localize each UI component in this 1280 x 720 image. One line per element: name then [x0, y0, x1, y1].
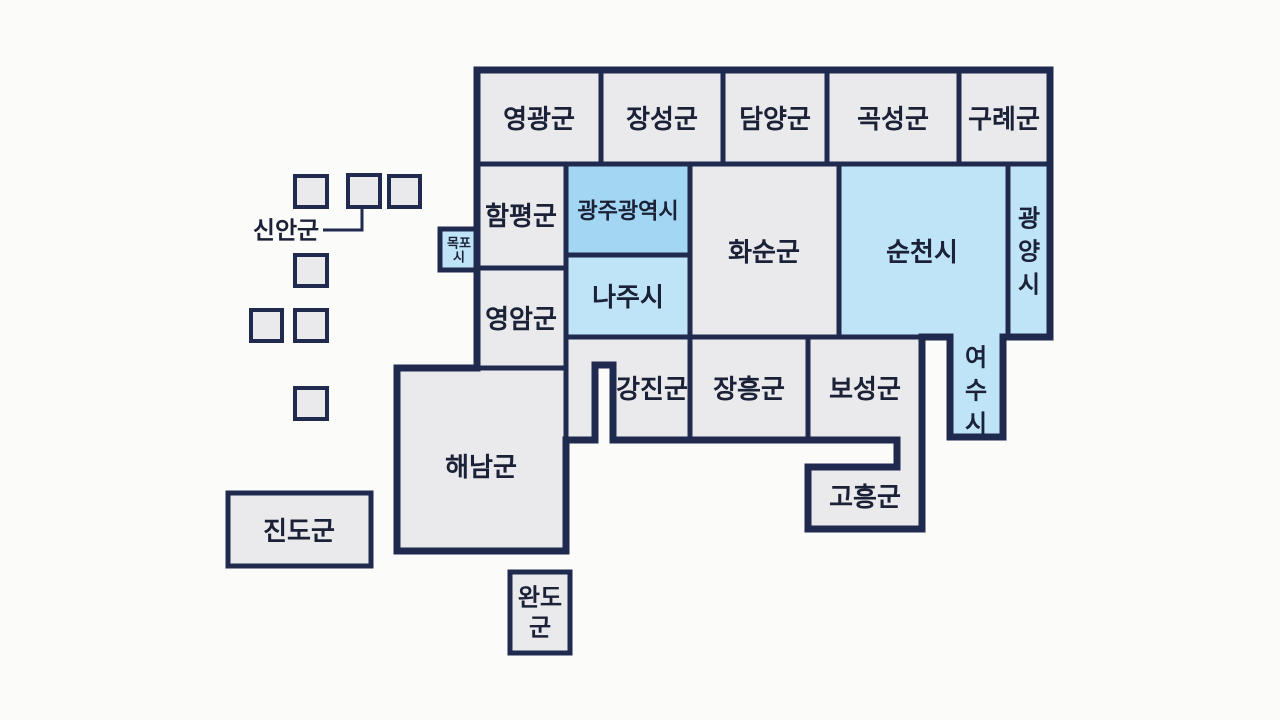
sinan-leader-line: [323, 208, 362, 230]
region-label-gangjin: 강진군: [616, 374, 688, 404]
region-label-boseong: 보성군: [829, 374, 901, 404]
tile-map-container: 영광군장성군담양군곡성군구례군함평군영암군광주광역시나주시화순군순천시광양시여수…: [0, 0, 1280, 720]
region-label-gwangyang: 광양시: [1018, 206, 1040, 299]
sinan-island-square: [295, 388, 327, 419]
region-label-hampyeong: 함평군: [485, 201, 557, 231]
sinan-island-square: [295, 255, 327, 286]
region-label-jangseong: 장성군: [626, 104, 698, 134]
region-label-yeosu: 여수시: [965, 345, 987, 438]
region-label-yeongam: 영암군: [485, 304, 557, 334]
region-label-gwangju: 광주광역시: [577, 199, 678, 224]
region-label-naju: 나주시: [592, 282, 664, 312]
region-label-damyang: 담양군: [739, 104, 811, 134]
sinan-island-square: [251, 310, 282, 341]
region-label-haenam: 해남군: [445, 452, 517, 482]
sinan-island-square: [348, 175, 380, 207]
region-label-jindo: 진도군: [263, 516, 335, 546]
region-label-gurye: 구례군: [968, 104, 1040, 134]
sinan-island-square: [295, 176, 327, 207]
region-label-goheung: 고흥군: [829, 482, 901, 512]
region-label-suncheon: 순천시: [886, 237, 958, 267]
region-label-yeonggwang: 영광군: [503, 104, 575, 134]
tile-map-canvas: 영광군장성군담양군곡성군구례군함평군영암군광주광역시나주시화순군순천시광양시여수…: [0, 0, 1280, 720]
sinan-island-square: [389, 176, 420, 207]
sinan-island-square: [295, 310, 327, 341]
region-label-jangheung: 장흥군: [713, 374, 785, 404]
region-label-gokseong: 곡성군: [857, 104, 929, 134]
region-label-sinan: 신안군: [253, 218, 319, 245]
region-label-hwasun: 화순군: [728, 237, 800, 267]
